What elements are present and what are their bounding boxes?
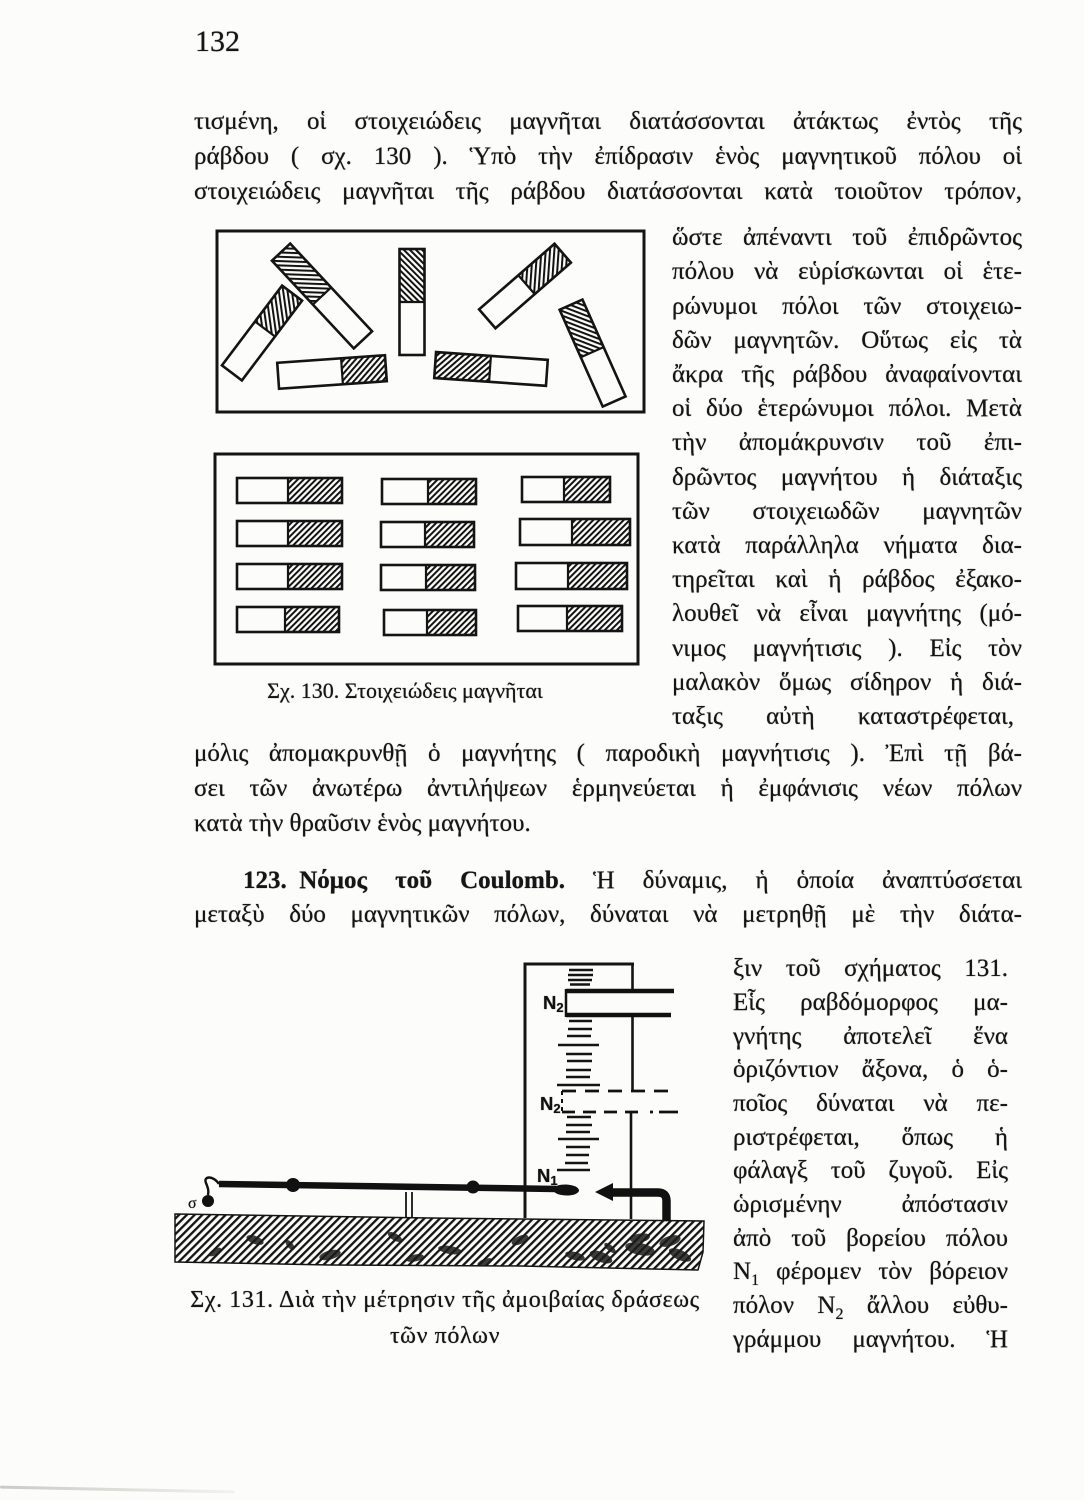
svg-text:N2: N2 — [543, 992, 564, 1015]
svg-text:N1: N1 — [537, 1165, 558, 1188]
svg-text:N2: N2 — [540, 1093, 561, 1116]
svg-text:σ: σ — [188, 1195, 197, 1212]
